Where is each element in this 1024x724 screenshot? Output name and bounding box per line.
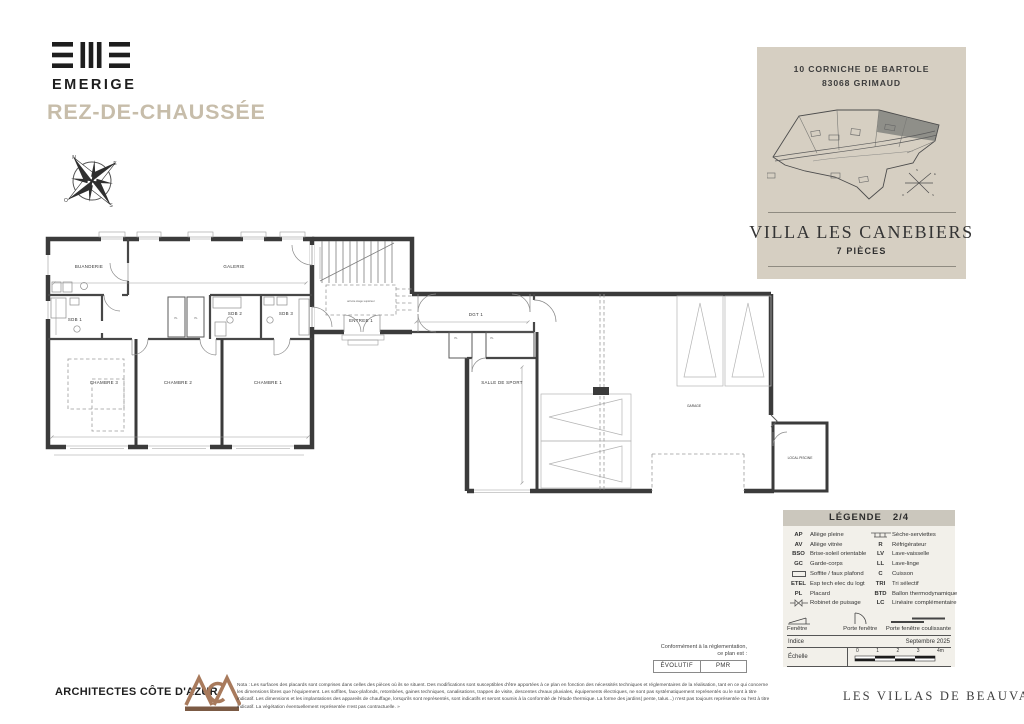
legend-label: Esp tech elec du logt [810,581,865,587]
legend-abbr: C [869,571,892,577]
legend-window-label: Porte fenêtre [843,626,877,632]
room-label-sdb3: SDB 3 [279,311,293,316]
legend-page-number: 2/4 [893,512,909,523]
legend-abbr: AP [787,532,810,538]
legend-abbr: LC [869,600,892,606]
room-label-chambre2: CHAMBRE 2 [164,380,193,385]
nota-text: Nota : Les surfaces des placards sont co… [237,682,774,711]
address-line-2: 83068 GRIMAUD [794,77,930,91]
evolutif-button[interactable]: ÉVOLUTIF [653,660,701,673]
legend-label: Cuisson [892,571,913,577]
room-label-sdb2: SDB 2 [228,311,242,316]
legend-abbr: BSO [787,551,810,557]
legend-abbr: LV [869,551,892,557]
aca-logo-icon [183,671,241,715]
legend-label: Placard [810,591,830,597]
card-divider [768,212,956,213]
compass-rose-icon: N E S O [52,144,132,218]
legend-window-label: Porte fenêtre coulissante [886,626,951,632]
legend-window-label: Fenêtre [787,626,807,632]
legend-abbr: TRI [869,581,892,587]
pmr-button[interactable]: PMR [701,660,748,673]
compass-s-label: S [109,203,113,209]
legend-label: Linéaire complémentaire [892,600,957,606]
echelle-label: Échelle [787,654,847,660]
legend-label: Ballon thermodynamique [892,591,957,597]
compass-n-label: N [72,155,76,161]
plan-sheet: EMERIGE REZ-DE-CHAUSSÉE N E S O 10 CORNI… [0,0,1024,724]
compass-e-label: E [113,161,117,167]
compliance-note-line2: ce plan est : [653,651,747,658]
room-label-entree: ENTREE 1 [349,318,373,323]
floor-plan: BUANDERIE GALERIE SDB 1 SDB 2 SDB 3 CHAM… [44,227,836,509]
legend-abbr: LL [869,561,892,567]
scale-tick-labels: 0 1 2 3 4m [856,648,944,654]
legend-abbr: AV [787,542,810,548]
scale-bar-graphic [854,655,954,665]
legend-title: LÉGENDE [829,512,882,523]
legend-right-column: Sèche-serviettes RRéfrigérateur LVLave-v… [869,530,951,608]
room-label-buanderie: BUANDERIE [75,264,103,269]
room-label-galerie: GALERIE [223,264,244,269]
room-label-salle-de-sport: SALLE DE SPORT [481,380,522,385]
legend-label: Allège pleine [810,532,844,538]
water-valve-icon [790,599,808,607]
legend-window-item: Fenêtre [787,615,835,632]
room-label-local-piscine: LOCAL PISCINE [788,456,814,460]
legend-french-door-item: Porte fenêtre [835,612,886,632]
legend-panel: LÉGENDE 2/4 APAllège pleine AVAllège vit… [783,510,955,667]
room-label-dgt: DGT 1 [469,312,484,317]
legend-abbr: GC [787,561,810,567]
address-line-1: 10 CORNICHE DE BARTOLE [794,63,930,77]
room-label-chambre1: CHAMBRE 1 [254,380,283,385]
page-title: REZ-DE-CHAUSSÉE [47,100,266,125]
sliding-door-symbol-icon [890,616,946,625]
indice-label: Indice [788,639,804,645]
legend-label: Lave-linge [892,561,919,567]
legend-label: Sèche-serviettes [892,532,936,538]
compliance-block: Conformément à la réglementation, ce pla… [653,644,747,673]
emerige-logo-icon [52,42,130,68]
french-door-symbol-icon [853,612,867,625]
compliance-note-line1: Conformément à la réglementation, [653,644,747,651]
site-compass-icon [905,173,933,193]
legend-label: Tri sélectif [892,581,919,587]
pl-label: PL [194,316,198,320]
legend-label: Allège vitrée [810,542,842,548]
site-plan-map: N E S O [767,95,956,205]
indice-date: Septembre 2025 [906,639,950,645]
room-label-chambre3: CHAMBRE 3 [90,380,119,385]
pl-label: PL [454,336,458,340]
legend-abbr: ETEL [787,581,810,587]
villa-rooms-count: 7 PIÈCES [836,246,886,256]
svg-text:O: O [902,193,905,197]
project-address: 10 CORNICHE DE BARTOLE 83068 GRIMAUD [794,63,930,91]
svg-text:E: E [934,172,936,176]
emerige-logo-text: EMERIGE [52,77,136,93]
pl-label: PL [174,316,178,320]
legend-abbr: R [869,542,892,548]
legend-divider [787,666,951,667]
room-label-garage: GARAGE [687,404,702,408]
legend-sliding-door-item: Porte fenêtre coulissante [886,616,951,632]
compass-o-label: O [64,198,68,204]
towel-dryer-icon [871,531,891,539]
project-brand: LES VILLAS DE BEAUVALLON [843,689,1024,704]
legend-header: LÉGENDE 2/4 [783,510,955,526]
room-label-sdb1: SDB 1 [68,317,82,322]
legend-label: Robinet de puisage [810,600,861,606]
legend-label: Brise-soleil orientable [810,551,866,557]
window-symbol-icon [787,615,811,625]
legend-label: Garde-corps [810,561,843,567]
svg-text:N: N [916,168,918,172]
svg-text:S: S [932,193,934,197]
soffit-symbol-icon [792,571,806,577]
legend-abbr: BTD [869,591,892,597]
legend-scale-row: Échelle 0 1 2 3 4m [787,648,951,666]
legend-left-column: APAllège pleine AVAllège vitrée BSOBrise… [787,530,869,608]
legend-indice-row: Indice Septembre 2025 [787,636,951,647]
stair-note: arrivée étage supérieur [347,299,375,303]
legend-label: Lave-vaisselle [892,551,929,557]
legend-abbr: PL [787,591,810,597]
scale-bar: 0 1 2 3 4m [847,648,951,666]
pl-label: PL [490,336,494,340]
legend-label: Soffite / faux plafond [810,571,864,577]
emerige-logo: EMERIGE [52,42,136,93]
legend-label: Réfrigérateur [892,542,926,548]
